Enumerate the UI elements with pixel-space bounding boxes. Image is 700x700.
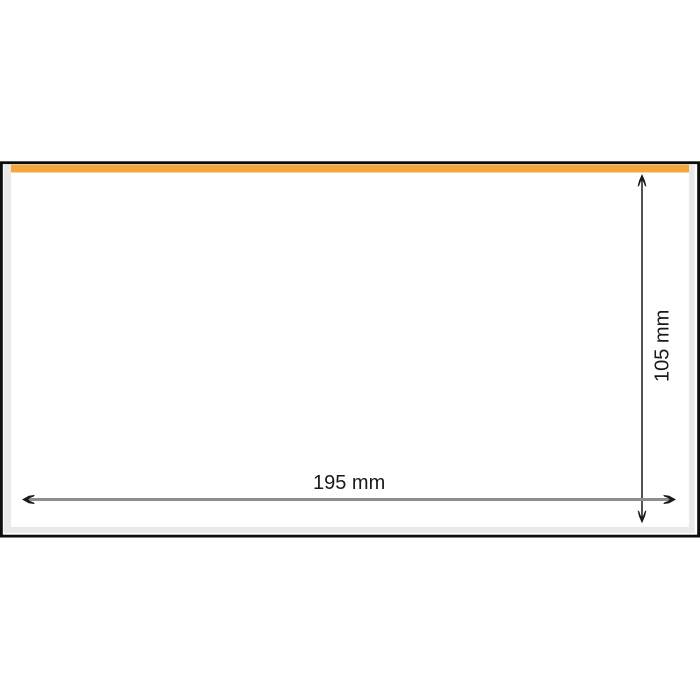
svg-text:105 mm: 105 mm	[652, 310, 674, 382]
svg-text:195 mm: 195 mm	[313, 472, 385, 494]
